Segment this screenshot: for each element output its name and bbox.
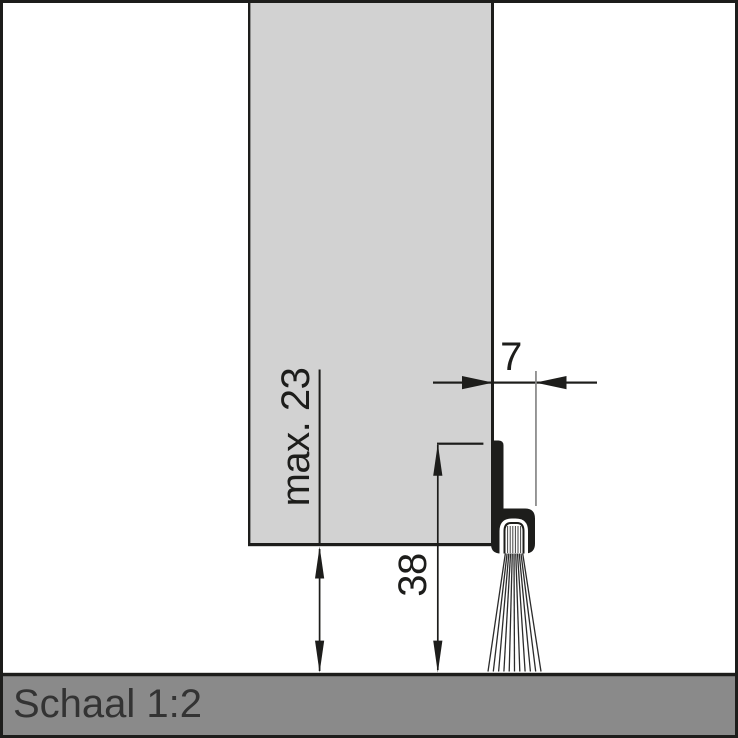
brush-seal-profile	[488, 441, 541, 672]
seal-flange	[491, 441, 504, 513]
door-left-edge	[248, 0, 250, 546]
drawing-canvas	[0, 0, 738, 738]
dim-38-arrow-down	[433, 641, 442, 673]
floor-top-edge	[0, 673, 738, 677]
dim-max23-arrow-down	[315, 641, 324, 673]
dimension-label-38: 38	[393, 553, 433, 597]
dim-max23-arrow-up	[315, 547, 324, 579]
dimension-label-7: 7	[500, 337, 522, 377]
dim-7-line	[433, 382, 597, 384]
dim-38-reference-line	[437, 443, 483, 445]
brush-bristles	[488, 549, 541, 672]
dim-7-arrow-left	[536, 376, 567, 389]
door-bottom-edge	[248, 543, 494, 546]
dimension-label-max-23: max. 23	[276, 368, 316, 507]
technical-drawing-page: 7 max. 23 38 Schaal 1:2	[0, 0, 738, 738]
scale-label: Schaal 1:2	[13, 684, 202, 724]
dim-7-extension-line	[535, 371, 537, 506]
dim-max23-extension-line	[319, 370, 321, 546]
